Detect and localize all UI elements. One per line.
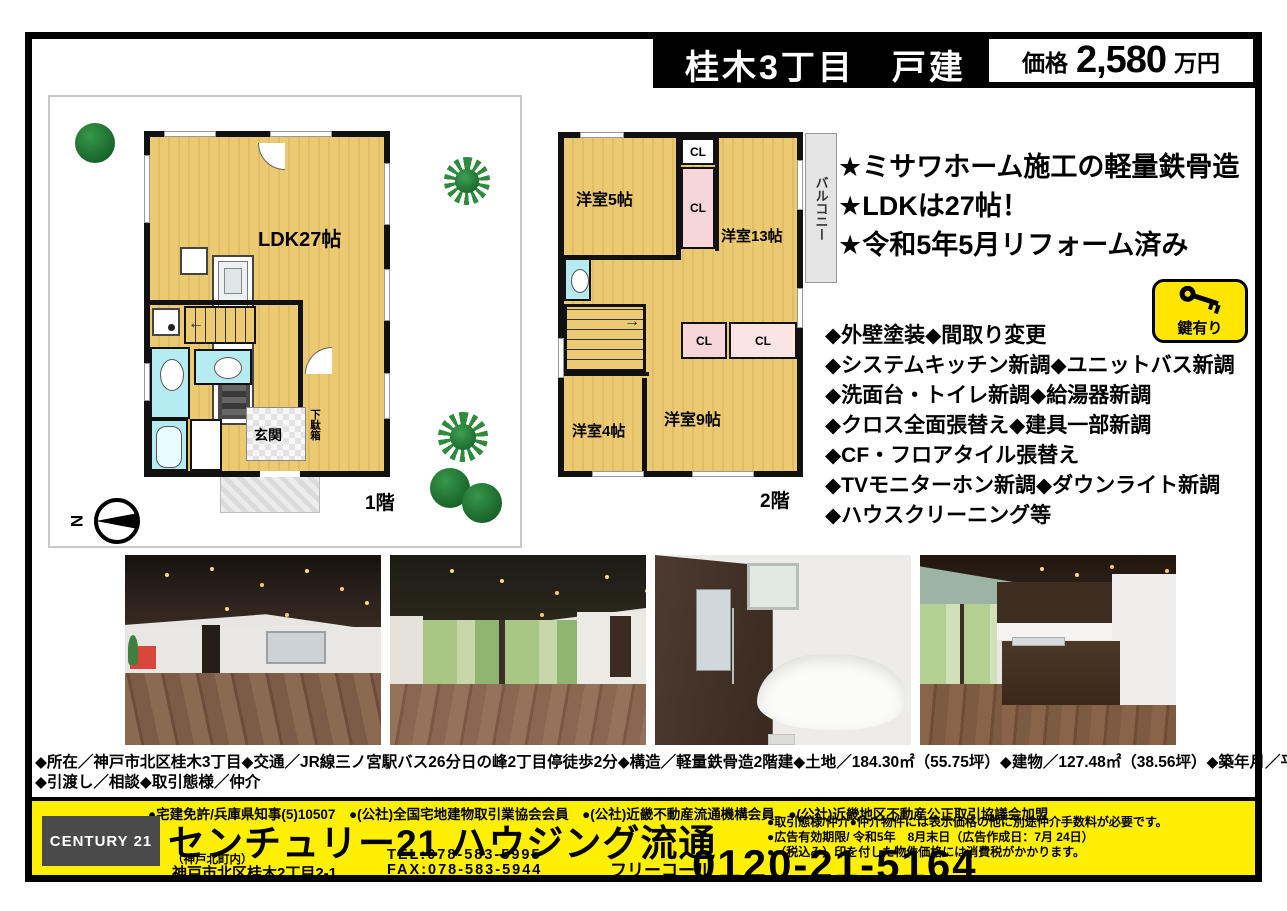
wall <box>150 300 302 305</box>
window <box>144 155 150 223</box>
page-title: 桂木3丁目 戸建 <box>685 40 966 89</box>
key-icon <box>1174 286 1226 316</box>
toilet-room <box>194 349 252 385</box>
closet-cl: CL <box>681 138 715 165</box>
highlight-item: ★令和5年5月リフォーム済み <box>838 226 1239 265</box>
entrance-opening <box>260 471 300 477</box>
flyer-page: 桂木3丁目 戸建 価格 2,580 万円 LDK27帖 <box>0 0 1287 911</box>
floor2-label: 2階 <box>760 486 790 513</box>
wall <box>715 138 719 251</box>
closet-label: CL <box>690 145 706 159</box>
highlight-item: ★LDKは27帖！ <box>838 187 1239 226</box>
footer-note: ●広告有効期限/ 令和5年 8月末日（広告作成日：7月 24日） <box>767 830 1168 845</box>
footer-notes: ●取引態様/仲介●仲介物件には表示価格の他に別途仲介手数料が必要です。 ●広告有… <box>767 815 1168 860</box>
compass-icon: N <box>70 495 148 547</box>
toilet-room <box>564 258 591 301</box>
window <box>797 288 803 328</box>
century21-logo-text: CENTURY 21 <box>50 833 153 850</box>
bathtub <box>156 426 182 468</box>
footer-note: ●（税込み）印を付した物件価格には消費税がかかります。 <box>767 845 1168 860</box>
utility-room <box>190 419 222 471</box>
century21-logo: CENTURY 21 <box>42 816 160 866</box>
renovation-item: ◆ハウスクリーニング等 <box>825 501 1235 531</box>
footer-banner: ●宅建免許/兵庫県知事(5)10507 ●(公社)全国宅地建物取引業協会会員 ●… <box>32 797 1255 875</box>
stairs-arrow-icon: ← <box>188 315 204 333</box>
floorplan-2: 洋室5帖 CL CL 洋室13帖 → CL CL 洋室4帖 洋室9帖 <box>558 132 803 477</box>
floorplan-1: LDK27帖 ← <box>144 131 390 477</box>
property-details-line1: ◆所在／神戸市北区桂木3丁目◆交通／JR線三ノ宮駅バス26分日の峰2丁目停徒歩2… <box>35 753 1287 773</box>
footer-note: ●取引態様/仲介●仲介物件には表示価格の他に別途仲介手数料が必要です。 <box>767 815 1168 830</box>
bathroom <box>150 419 188 471</box>
tree-bush-icon <box>75 123 115 163</box>
photo-living-dining-2 <box>390 555 646 745</box>
window <box>592 471 644 477</box>
price-label: 価格 <box>1022 44 1068 78</box>
tel-number: TEL:078-583-5995 <box>387 847 542 863</box>
wall <box>564 372 649 376</box>
company-address: 神戸市北区桂木2丁目2-1 <box>172 862 337 883</box>
price-value: 2,580 <box>1076 39 1166 82</box>
door-arc <box>258 143 285 170</box>
room-label-ldk: LDK27帖 <box>258 223 341 252</box>
photo-strip <box>125 555 1176 745</box>
washroom <box>150 347 190 419</box>
renovations-list: ◆外壁塗装◆間取り変更 ◆システムキッチン新調◆ユニットバス新調 ◆洗面台・トイ… <box>825 321 1235 531</box>
floorplan-1-container: LDK27帖 ← <box>48 95 522 548</box>
wall <box>298 300 303 420</box>
balcony-area: バルコニー <box>805 133 837 283</box>
closet-cl: CL <box>681 322 727 359</box>
shoebox-label: 下駄箱 <box>308 409 323 441</box>
floor1-label: 1階 <box>365 488 395 515</box>
closet-cl: CL <box>681 167 715 249</box>
photo-living-dining-1 <box>125 555 381 745</box>
window <box>580 132 624 138</box>
laundry-space <box>152 308 180 336</box>
stairs: ← <box>184 306 256 344</box>
highlights-list: ★ミサワホーム施工の軽量鉄骨造 ★LDKは27帖！ ★令和5年5月リフォーム済み <box>838 148 1239 265</box>
room4-label: 洋室4帖 <box>572 420 625 441</box>
title-banner: 桂木3丁目 戸建 価格 2,580 万円 <box>653 33 1262 88</box>
highlight-item: ★ミサワホーム施工の軽量鉄骨造 <box>838 148 1239 187</box>
window <box>164 131 216 137</box>
room5-label: 洋室5帖 <box>576 186 633 210</box>
room9-label: 洋室9帖 <box>664 406 721 430</box>
toilet <box>571 269 589 293</box>
compass-n-label: N <box>70 515 86 527</box>
property-details-line2: ◆引渡し／相談◆取引態様／仲介 <box>35 773 260 793</box>
tree-bush-icon <box>462 483 502 523</box>
photo-bathroom <box>655 555 911 745</box>
price-unit: 万円 <box>1174 44 1220 78</box>
renovation-item: ◆外壁塗装◆間取り変更 <box>825 321 1235 351</box>
window <box>692 471 754 477</box>
room13-label: 洋室13帖 <box>721 225 783 246</box>
renovation-item: ◆洗面台・トイレ新調◆給湯器新調 <box>825 381 1235 411</box>
closet-label: CL <box>696 334 712 348</box>
stairs-arrow-icon: → <box>624 313 640 331</box>
price-box: 価格 2,580 万円 <box>989 39 1253 82</box>
tree-spiky-icon <box>444 157 490 205</box>
window <box>384 269 390 321</box>
door-arc <box>305 347 332 374</box>
photo-kitchen <box>920 555 1176 745</box>
window <box>384 163 390 225</box>
closet-label: CL <box>755 334 771 348</box>
closet-label: CL <box>690 201 706 215</box>
renovation-item: ◆システムキッチン新調◆ユニットバス新調 <box>825 351 1235 381</box>
washbasin <box>160 359 184 391</box>
fax-number: FAX:078-583-5944 <box>387 862 542 878</box>
kitchen-table <box>180 247 208 275</box>
balcony-label: バルコニー <box>812 176 831 241</box>
tree-spiky-icon <box>438 412 488 462</box>
renovation-item: ◆TVモニターホン新調◆ダウンライト新調 <box>825 471 1235 501</box>
toilet <box>214 357 242 379</box>
renovation-item: ◆クロス全面張替え◆建具一部新調 <box>825 411 1235 441</box>
window <box>384 373 390 419</box>
window <box>270 131 332 137</box>
wall <box>642 378 647 471</box>
stairs: → <box>564 304 646 372</box>
window <box>797 160 803 210</box>
renovation-item: ◆CF・フロアタイル張替え <box>825 441 1235 471</box>
genkan-label: 玄関 <box>254 425 282 445</box>
closet-cl: CL <box>729 322 797 359</box>
